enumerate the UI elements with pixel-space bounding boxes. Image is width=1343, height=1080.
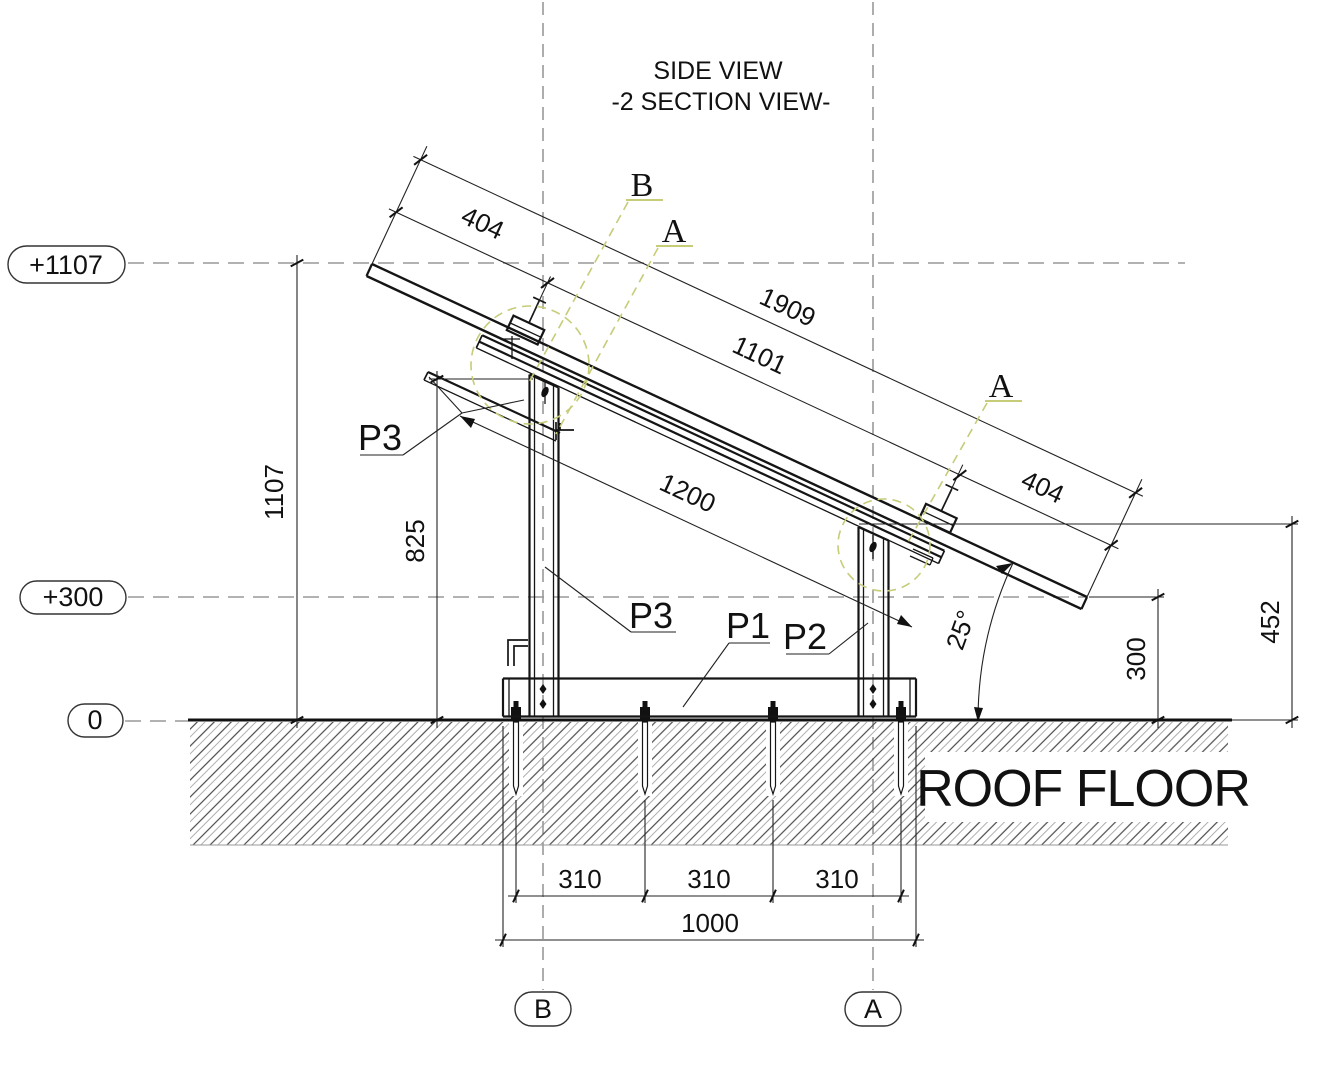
anchor-bolt	[638, 701, 652, 796]
front-post-bolt-icon	[868, 541, 878, 554]
bolt-icon	[540, 699, 547, 709]
level-value-300: +300	[43, 582, 104, 612]
section-letter-b: B	[631, 167, 654, 204]
dim-overhang-right: 404	[1017, 464, 1069, 510]
label-p2: P2	[783, 616, 827, 657]
angle-clips	[508, 422, 933, 666]
dim-overall-height: 1107	[259, 464, 289, 520]
grid-bubble-a-label: A	[864, 994, 882, 1024]
dim-anchor-span-1: 310	[558, 864, 601, 894]
section-line-a-rear	[556, 248, 658, 434]
anchor-bolt	[509, 701, 523, 796]
title-line-1: SIDE VIEW	[653, 57, 783, 85]
grid-bubbles: B A	[515, 992, 901, 1026]
roof-floor-label: ROOF FLOOR	[916, 760, 1250, 818]
dim-rail-length: 1200	[655, 467, 720, 519]
dim-overhang-left: 404	[457, 200, 509, 246]
bolt-icon	[540, 684, 547, 694]
section-letter-a-front: A	[989, 368, 1014, 405]
section-letter-a-rear: A	[662, 213, 687, 250]
panel-dimensions: 404 1909 1101 404	[372, 146, 1143, 597]
bolt-icon	[870, 684, 877, 694]
dim-support-span: 1101	[728, 329, 791, 380]
rear-post-bolt-icon	[540, 386, 550, 399]
level-value-0: 0	[87, 705, 102, 735]
dim-right-height: 452	[1255, 600, 1285, 643]
front-clamp	[919, 485, 958, 533]
section-drawing-canvas: ROOF FLOOR	[0, 0, 1343, 1080]
tilt-angle: 25°	[940, 563, 1013, 722]
label-p3-upper: P3	[358, 417, 402, 458]
dim-base-length: 1000	[681, 908, 739, 938]
grid-bubble-b-label: B	[534, 994, 552, 1024]
title-line-2: -2 SECTION VIEW-	[611, 88, 830, 116]
dim-anchor-span-2: 310	[687, 864, 730, 894]
rear-clamp	[507, 297, 546, 344]
dim-rear-post-height: 825	[400, 519, 430, 562]
drawing-title: SIDE VIEW -2 SECTION VIEW-	[611, 57, 830, 116]
cad-drawing-page: ROOF FLOOR	[0, 0, 1343, 1080]
dim-front-height: 300	[1121, 637, 1151, 680]
clip-rear-bottom	[508, 640, 528, 666]
dim-total-length: 1909	[755, 281, 820, 333]
label-p3-lower: P3	[629, 595, 673, 636]
label-p1: P1	[726, 605, 770, 646]
inclined-rail	[476, 335, 944, 563]
anchor-bolt	[894, 701, 908, 796]
bolt-icon	[870, 699, 877, 709]
base-rail-p1	[503, 679, 916, 717]
right-dimensions: 452 300	[859, 516, 1298, 728]
part-labels: P3 P3 P1 P2	[358, 377, 868, 707]
anchor-bolt	[766, 701, 780, 796]
base-bolts	[540, 684, 877, 709]
dim-tilt-angle: 25°	[940, 606, 982, 653]
dim-anchor-span-3: 310	[815, 864, 858, 894]
left-dimensions: 1107 825	[259, 255, 533, 728]
section-line-a-front	[908, 403, 987, 542]
solar-panel	[367, 264, 1088, 609]
elevation-markers: +1107 +300 0	[8, 246, 126, 737]
roof-floor: ROOF FLOOR	[188, 720, 1250, 845]
level-value-1107: +1107	[29, 250, 103, 280]
